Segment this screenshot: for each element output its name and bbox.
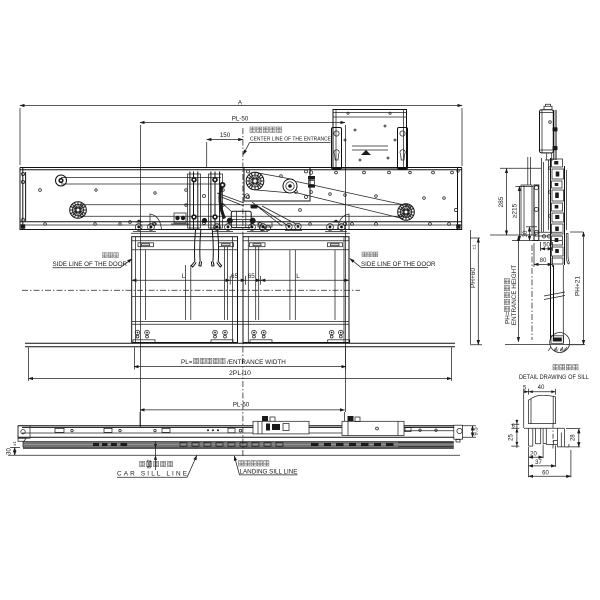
svg-text:50: 50 [543,243,550,249]
svg-text:6: 6 [512,424,515,430]
svg-text:L: L [182,273,186,280]
svg-text:/ENTRANCE WIDTH: /ENTRANCE WIDTH [227,359,286,366]
svg-text:≥215: ≥215 [511,203,518,218]
svg-text:W: W [554,348,559,353]
svg-text:30: 30 [7,448,13,455]
svg-text:LANDING SILL LINE: LANDING SILL LINE [240,468,298,475]
svg-text:37: 37 [535,460,542,466]
svg-text:28: 28 [570,434,576,441]
svg-text:8±2: 8±2 [147,459,153,468]
svg-text:DETAIL DRAWING OF SILL: DETAIL DRAWING OF SILL [519,374,590,381]
svg-text:W: W [560,348,565,353]
svg-text:PH+60: PH+60 [470,268,477,288]
svg-text:CAR SILL LINE: CAR SILL LINE [117,471,187,478]
svg-text:65: 65 [248,273,255,280]
svg-text:±1: ±1 [12,441,17,446]
svg-text:9.5: 9.5 [474,427,480,436]
svg-text:2PL-10: 2PL-10 [229,370,251,377]
svg-text:PL-50: PL-50 [232,116,249,123]
svg-text:±1: ±1 [472,244,477,249]
svg-text:PL-50: PL-50 [233,402,250,409]
svg-text:L: L [296,273,300,280]
svg-text:25: 25 [508,434,514,441]
svg-text:80: 80 [540,258,547,264]
svg-text:ENTRANCE HEIGHT: ENTRANCE HEIGHT [511,265,518,325]
svg-text:SIDE LINE OF THE DOOR: SIDE LINE OF THE DOOR [361,261,436,268]
svg-text:PH+21: PH+21 [575,276,582,296]
svg-text:60: 60 [542,470,549,476]
svg-text:40: 40 [538,385,545,391]
svg-text:30: 30 [523,230,529,237]
svg-text:285: 285 [498,196,505,207]
svg-text:65: 65 [231,273,238,280]
svg-text:20: 20 [530,451,537,457]
svg-text:SIDE LINE OF THE DOOR: SIDE LINE OF THE DOOR [53,261,128,268]
svg-text:PL=: PL= [181,359,193,366]
svg-text:CENTER LINE OF THE ENTRANCE: CENTER LINE OF THE ENTRANCE [250,137,331,143]
svg-text:150: 150 [220,132,231,139]
